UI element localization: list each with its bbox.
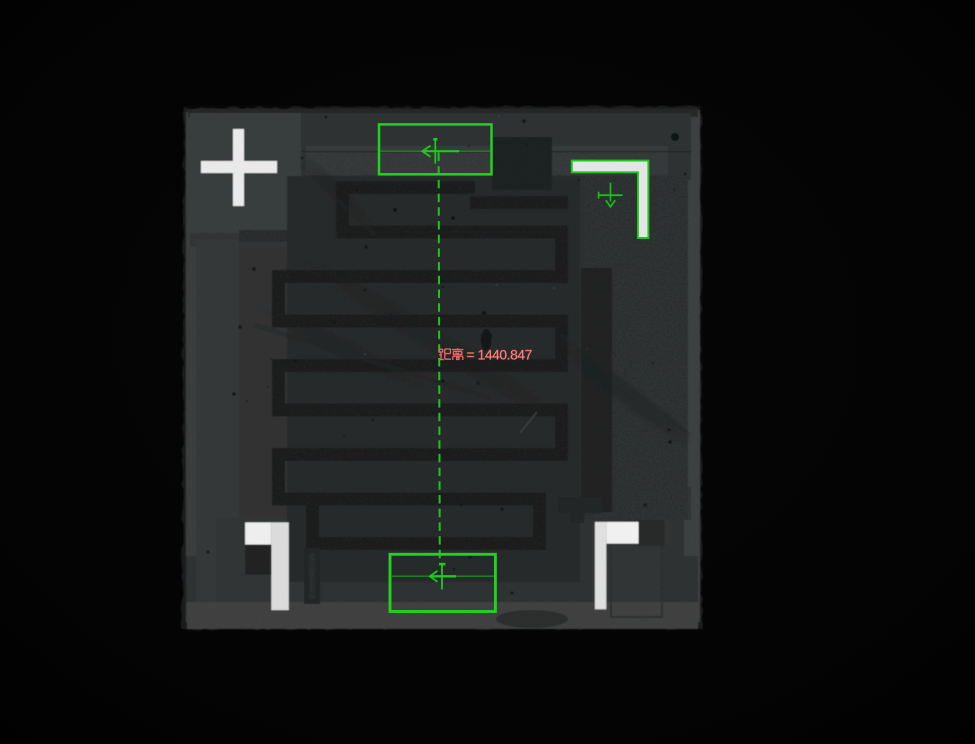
- svg-text:= 1440.847: = 1440.847: [467, 347, 532, 362]
